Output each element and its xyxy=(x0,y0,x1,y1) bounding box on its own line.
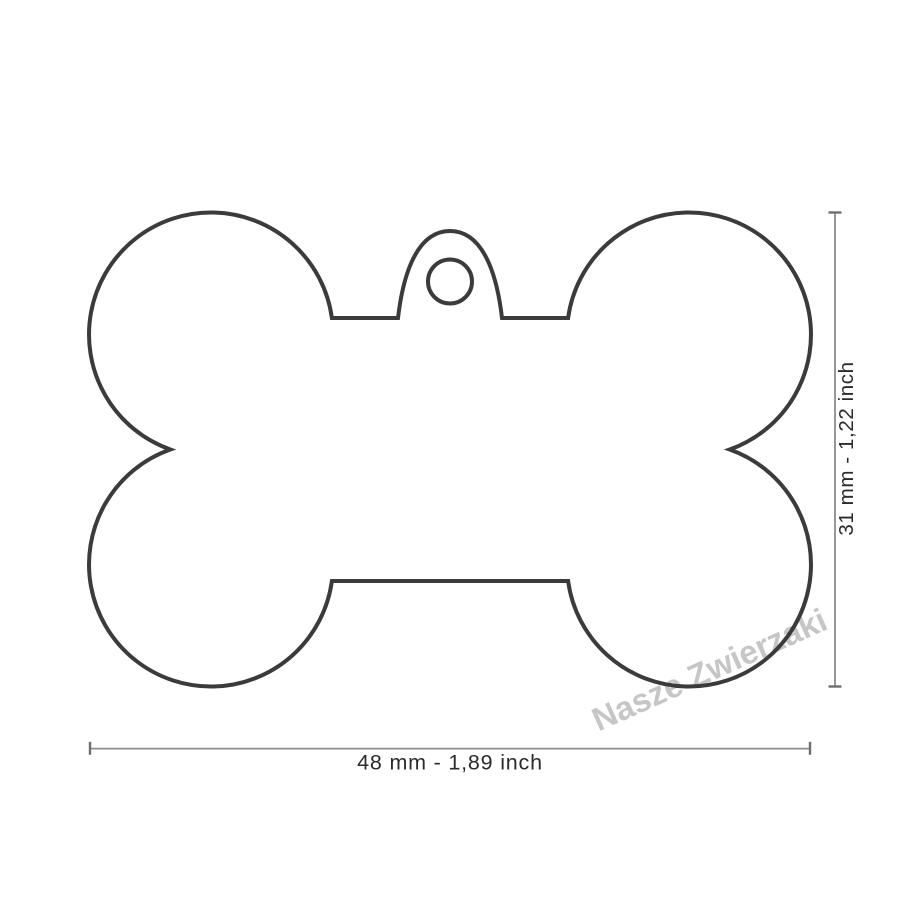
svg-text:48 mm - 1,89 inch: 48 mm - 1,89 inch xyxy=(357,751,543,775)
svg-text:31 mm - 1,22 inch: 31 mm - 1,22 inch xyxy=(835,361,858,535)
